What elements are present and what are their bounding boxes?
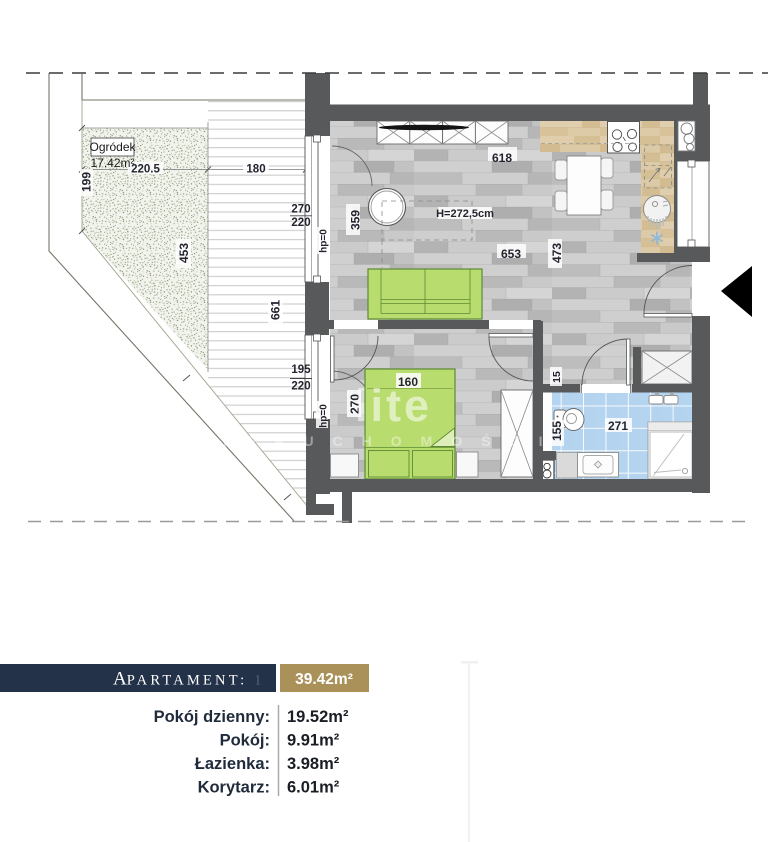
svg-text:H=272,5cm: H=272,5cm	[436, 208, 494, 220]
svg-text:lite: lite	[355, 380, 432, 431]
svg-text:17.42m²: 17.42m²	[90, 156, 134, 170]
svg-text:39.42m²: 39.42m²	[295, 671, 353, 688]
svg-text:220: 220	[291, 217, 310, 229]
svg-text:NIERUCHOMOŚCI: NIERUCHOMOŚCI	[194, 432, 562, 449]
svg-text:hp=0: hp=0	[319, 229, 330, 253]
svg-text:Korytarz:: Korytarz:	[198, 779, 270, 797]
svg-text:Łazienka:: Łazienka:	[195, 755, 270, 773]
svg-text:473: 473	[550, 243, 564, 263]
svg-text:220: 220	[291, 381, 310, 393]
svg-text:661: 661	[269, 300, 283, 320]
svg-text:15: 15	[551, 371, 563, 383]
svg-text:180: 180	[246, 164, 265, 176]
svg-text:199: 199	[80, 172, 94, 192]
svg-text:653: 653	[501, 247, 521, 261]
svg-text:9.91m²: 9.91m²	[287, 732, 340, 750]
svg-text:195: 195	[291, 364, 311, 376]
svg-text:618: 618	[492, 151, 512, 165]
svg-text:6.01m²: 6.01m²	[287, 779, 340, 797]
svg-text:271: 271	[608, 419, 628, 433]
svg-text:359: 359	[349, 210, 363, 230]
svg-text:Ogródek: Ogródek	[89, 140, 136, 154]
svg-text:19.52m²: 19.52m²	[287, 708, 349, 726]
svg-text:Pokój:: Pokój:	[220, 732, 270, 750]
svg-text:Pokój dzienny:: Pokój dzienny:	[154, 708, 270, 726]
svg-text:APARTAMENT: 1: APARTAMENT: 1	[113, 669, 261, 690]
svg-text:270: 270	[291, 204, 310, 216]
svg-text:3.98m²: 3.98m²	[287, 755, 340, 773]
svg-text:220.5: 220.5	[131, 164, 160, 176]
svg-text:hp=0: hp=0	[319, 404, 330, 428]
svg-text:453: 453	[177, 243, 191, 263]
